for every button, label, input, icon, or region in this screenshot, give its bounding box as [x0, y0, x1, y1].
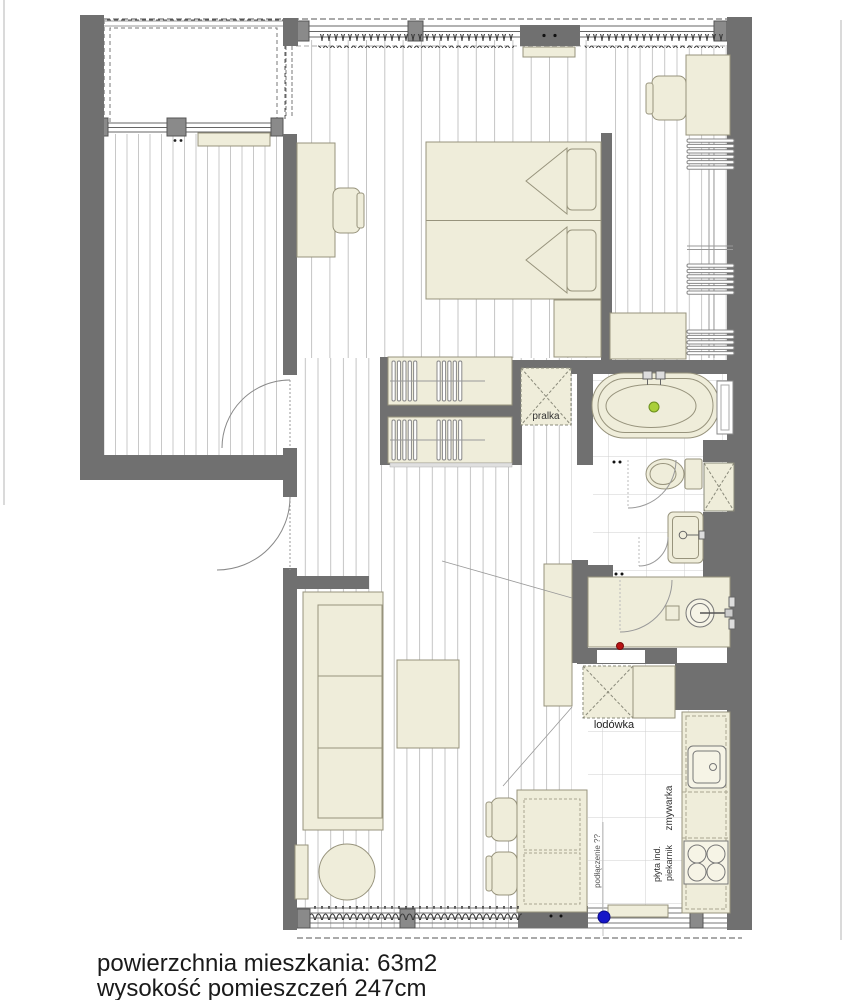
- left-room-shelf: [198, 133, 270, 146]
- basin-tap-head: [725, 609, 733, 617]
- sofa-cushions: [318, 605, 382, 818]
- hinge-dot: [613, 461, 616, 464]
- floor-plan-page: pralka lodówka zmywarka płyta ind. pieka…: [0, 0, 843, 1000]
- desk: [686, 55, 730, 135]
- pillow: [567, 230, 596, 291]
- pouf: [319, 844, 375, 900]
- wall-fixture: [729, 619, 735, 629]
- marker-dot: [174, 139, 177, 142]
- dining-table: [517, 790, 587, 912]
- kitchen-shaft-block: [675, 663, 730, 710]
- washbasin-tap-head: [699, 531, 705, 539]
- balcony-side-dashed: [286, 46, 292, 118]
- wall-fixture: [729, 597, 735, 607]
- door-handle-dot: [560, 915, 563, 918]
- connection-dot: [598, 911, 610, 923]
- door-handle-dot: [550, 915, 553, 918]
- floor-plan-svg: pralka lodówka zmywarka płyta ind. pieka…: [0, 0, 843, 1000]
- kitchen-door-gap: [597, 650, 645, 663]
- balcony-inner-dashed: [110, 28, 277, 122]
- window-sill-shelf: [608, 905, 668, 917]
- wall-main-left-mid: [283, 448, 297, 497]
- dining-chair: [491, 798, 517, 841]
- dressing-desk: [297, 143, 335, 257]
- wall-bath-niche-upper: [703, 440, 735, 462]
- left-window-glazing: [96, 123, 283, 132]
- label-induction-hob: płyta ind.: [652, 846, 662, 882]
- curtain-bedroom-left: [318, 34, 514, 48]
- label-oven: piekarnik: [664, 844, 674, 881]
- wardrobe-chest: [610, 313, 686, 359]
- bedroom-tv-unit: [520, 25, 580, 46]
- alert-dot: [617, 643, 624, 650]
- side-shelf: [295, 845, 308, 899]
- tv-wall-unit: [297, 576, 369, 589]
- wall-bath-niche-lower: [703, 512, 735, 577]
- tv-shelf: [523, 47, 575, 57]
- wall-left-room-bottom: [80, 455, 292, 480]
- bath-side-panel: [717, 381, 733, 434]
- left-room-floor: [104, 134, 284, 456]
- dining-chair-back: [486, 802, 492, 837]
- label-fridge: lodówka: [594, 719, 635, 731]
- hinge-dot: [615, 573, 618, 576]
- wall-pralka-right: [577, 360, 593, 465]
- window-mullion: [167, 118, 186, 136]
- window-mullion: [297, 909, 310, 928]
- desk-chair: [333, 188, 360, 233]
- footer-height-line: wysokość pomieszczeń 247cm: [96, 975, 426, 1000]
- label-washing-machine: pralka: [532, 411, 560, 422]
- balcony-outline-dashed: [104, 20, 285, 122]
- wc-room: [588, 573, 735, 650]
- footer-area-line: powierzchnia mieszkania: 63m2: [97, 950, 437, 977]
- office-chair-back: [646, 83, 653, 114]
- wall-left-outer: [80, 15, 104, 480]
- closet-front-strip: [390, 463, 512, 467]
- bed-foot-chest: [554, 300, 601, 357]
- floors: [104, 40, 730, 928]
- tv-dot: [553, 34, 556, 37]
- shower-cabinet: [704, 463, 734, 511]
- tall-cabinet: [544, 564, 572, 706]
- toilet-tank: [685, 459, 702, 489]
- fridge-cabinet: [633, 666, 675, 718]
- wall-main-left-upper: [283, 134, 297, 375]
- wall-living-kitchen: [572, 560, 588, 663]
- footer: powierzchnia mieszkania: 63m2 wysokość p…: [96, 950, 437, 1000]
- coffee-table: [397, 660, 459, 748]
- marker-dot: [180, 139, 183, 142]
- label-dishwasher: zmywarka: [664, 785, 675, 830]
- pillow: [567, 149, 596, 210]
- wall-pillar: [283, 18, 298, 46]
- hinge-dot: [621, 573, 624, 576]
- office-chair: [652, 76, 686, 120]
- desk-chair-back: [357, 193, 364, 228]
- bathtub-drain-dot: [649, 402, 659, 412]
- tv-dot: [542, 34, 545, 37]
- dining-chair-back: [486, 856, 492, 891]
- wall-closet-mid: [390, 405, 518, 417]
- bath-tap: [643, 371, 652, 379]
- balcony-railing: [104, 21, 285, 26]
- window-mullion: [271, 118, 283, 136]
- bath-tap: [656, 371, 665, 379]
- entrance-door-arc: [217, 497, 290, 570]
- label-connection: podłączenie ??: [593, 834, 602, 888]
- dining-chair: [491, 852, 517, 895]
- curtain-living: [310, 906, 522, 920]
- curtain-bedroom-right: [585, 34, 723, 48]
- hinge-dot: [619, 461, 622, 464]
